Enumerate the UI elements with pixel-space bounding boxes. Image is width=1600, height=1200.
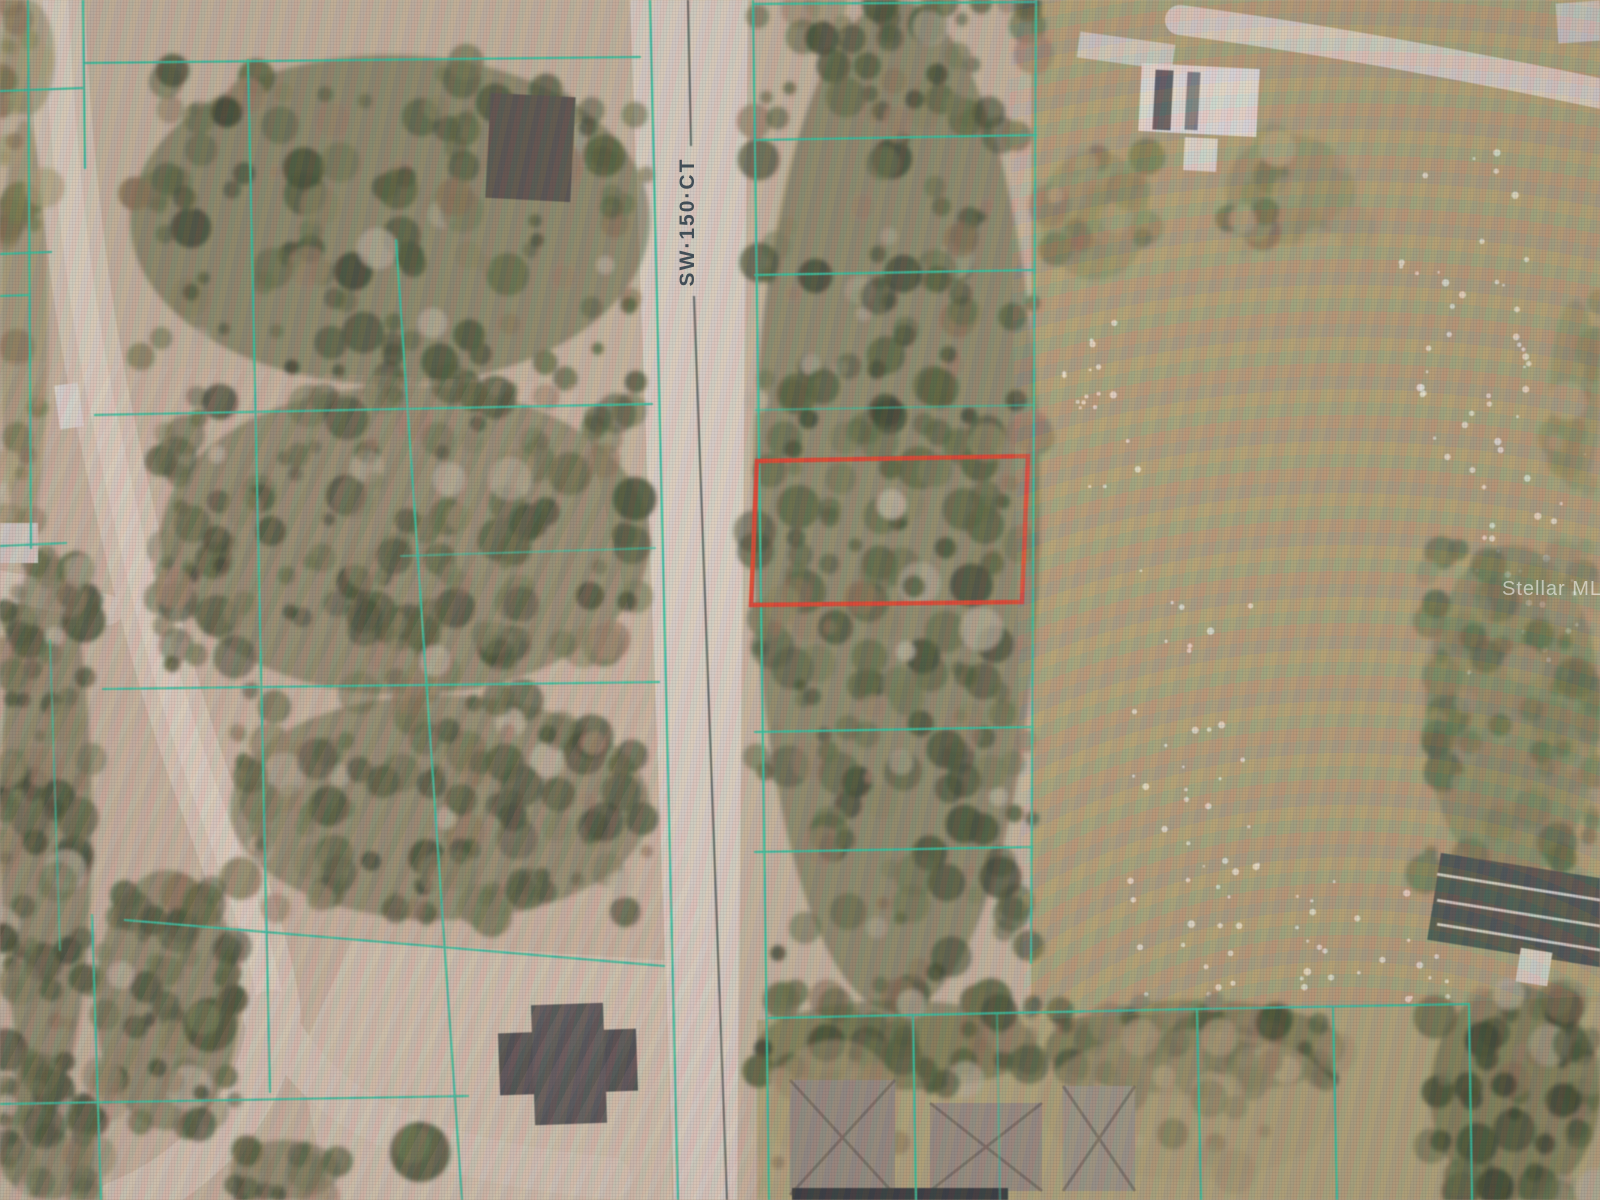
tree-canopy bbox=[819, 554, 840, 575]
tree-canopy bbox=[1508, 1106, 1522, 1120]
tree-canopy bbox=[541, 777, 575, 811]
tree-canopy bbox=[10, 584, 26, 600]
sand-speckle bbox=[1489, 523, 1495, 529]
sand-speckle bbox=[1132, 775, 1135, 778]
tree-canopy bbox=[1025, 295, 1041, 311]
sand-speckle bbox=[1422, 173, 1428, 179]
sand-speckle bbox=[1416, 962, 1423, 969]
tree-canopy bbox=[346, 757, 372, 783]
tree-canopy bbox=[23, 830, 48, 855]
tree-canopy bbox=[353, 443, 370, 460]
tree-canopy bbox=[757, 370, 775, 388]
tree-canopy bbox=[1258, 1049, 1283, 1074]
tree-canopy bbox=[1559, 668, 1572, 681]
tree-canopy bbox=[1272, 176, 1302, 206]
tree-canopy bbox=[825, 463, 856, 494]
tree-canopy bbox=[448, 44, 484, 80]
tree-canopy bbox=[93, 943, 111, 961]
tree-canopy bbox=[625, 371, 647, 393]
tree-canopy bbox=[1492, 1072, 1517, 1097]
sand-speckle bbox=[1437, 271, 1440, 274]
tree-canopy bbox=[171, 207, 212, 248]
sand-speckle bbox=[1482, 485, 1487, 490]
street-name-label: SW·150·CT bbox=[673, 132, 703, 312]
tree-canopy bbox=[342, 312, 384, 354]
tree-canopy bbox=[216, 929, 252, 965]
tree-canopy bbox=[864, 784, 900, 820]
tree-canopy bbox=[881, 666, 917, 702]
tree-canopy bbox=[597, 257, 613, 273]
tree-canopy bbox=[979, 199, 994, 214]
tree-canopy bbox=[1493, 978, 1524, 1009]
tree-canopy bbox=[242, 682, 259, 699]
tree-canopy bbox=[1579, 475, 1599, 495]
tree-canopy bbox=[579, 118, 598, 137]
sand-speckle bbox=[1469, 411, 1474, 416]
sand-speckle bbox=[1181, 943, 1185, 947]
tree-canopy bbox=[533, 350, 558, 375]
tree-canopy bbox=[277, 566, 295, 584]
sand-speckle bbox=[1296, 895, 1299, 898]
tree-canopy bbox=[1435, 649, 1449, 663]
tree-canopy bbox=[818, 741, 839, 762]
tree-canopy bbox=[867, 360, 886, 379]
tree-canopy bbox=[967, 813, 999, 845]
tree-canopy bbox=[850, 194, 876, 220]
tree-canopy bbox=[268, 166, 281, 179]
tree-canopy bbox=[1548, 382, 1587, 421]
tree-canopy bbox=[851, 639, 887, 675]
tree-canopy bbox=[419, 309, 447, 337]
tree-canopy bbox=[150, 327, 173, 350]
sand-speckle bbox=[1399, 265, 1403, 269]
tree-canopy bbox=[522, 624, 542, 644]
tree-canopy bbox=[785, 286, 800, 301]
sand-speckle bbox=[1462, 422, 1469, 429]
tree-canopy bbox=[5, 41, 19, 55]
tree-canopy bbox=[435, 178, 474, 217]
tree-canopy bbox=[35, 1123, 57, 1145]
tree-canopy bbox=[973, 495, 999, 521]
sand-speckle bbox=[1232, 868, 1239, 875]
sand-speckle bbox=[1076, 400, 1080, 404]
sand-speckle bbox=[1309, 909, 1316, 916]
sand-speckle bbox=[1203, 865, 1205, 867]
stellar-mls-watermark: Stellar MLS bbox=[1502, 578, 1600, 601]
tree-canopy bbox=[1086, 185, 1111, 210]
tree-canopy bbox=[583, 135, 625, 177]
tree-canopy bbox=[223, 181, 241, 199]
tree-canopy bbox=[866, 146, 900, 180]
single-tree-highlight bbox=[187, 1002, 219, 1034]
tree-canopy bbox=[460, 109, 476, 125]
tree-canopy bbox=[332, 364, 345, 377]
tree-canopy bbox=[621, 297, 638, 314]
tree-canopy bbox=[448, 150, 480, 182]
sand-speckle bbox=[1088, 485, 1091, 488]
tree-canopy bbox=[325, 396, 369, 440]
tree-canopy bbox=[261, 106, 299, 144]
tree-canopy bbox=[932, 197, 951, 216]
tree-canopy bbox=[283, 147, 325, 189]
tree-canopy bbox=[185, 643, 208, 666]
sand-speckle bbox=[1516, 415, 1519, 418]
tree-canopy bbox=[1512, 789, 1551, 828]
tree-canopy bbox=[1582, 806, 1600, 824]
sand-speckle bbox=[1442, 279, 1449, 286]
tree-canopy bbox=[961, 1021, 978, 1038]
tree-canopy bbox=[766, 107, 789, 130]
tree-canopy bbox=[75, 743, 107, 775]
tree-canopy bbox=[1545, 980, 1588, 1023]
tree-canopy bbox=[183, 101, 216, 134]
sand-speckle bbox=[1171, 601, 1174, 604]
tree-canopy bbox=[30, 1080, 46, 1096]
sand-speckle bbox=[1357, 971, 1361, 975]
tree-canopy bbox=[760, 91, 773, 104]
tree-canopy bbox=[519, 427, 548, 456]
sand-speckle bbox=[1186, 878, 1191, 883]
tree-canopy bbox=[110, 880, 140, 910]
tree-canopy bbox=[1534, 1133, 1555, 1154]
sand-speckle bbox=[1517, 343, 1521, 347]
tree-canopy bbox=[932, 1069, 961, 1098]
tree-canopy bbox=[849, 538, 863, 552]
tree-canopy bbox=[323, 513, 336, 526]
tree-canopy bbox=[492, 898, 511, 917]
sand-speckle bbox=[1126, 439, 1130, 443]
sand-speckle bbox=[1187, 643, 1192, 648]
sand-speckle bbox=[1522, 386, 1529, 393]
sand-speckle bbox=[1512, 192, 1519, 199]
tree-canopy bbox=[308, 440, 321, 453]
tree-canopy bbox=[1060, 1019, 1073, 1032]
sand-speckle bbox=[1081, 400, 1085, 404]
tree-canopy bbox=[361, 851, 381, 871]
tree-canopy bbox=[592, 559, 607, 574]
tree-canopy bbox=[277, 784, 304, 811]
tree-canopy bbox=[392, 677, 429, 714]
tree-canopy bbox=[47, 578, 87, 618]
tree-canopy bbox=[1229, 205, 1256, 232]
tree-canopy bbox=[182, 883, 226, 927]
tree-canopy bbox=[155, 437, 198, 480]
tree-canopy bbox=[423, 95, 449, 121]
tree-canopy bbox=[1545, 1083, 1580, 1118]
tree-canopy bbox=[1525, 1163, 1544, 1182]
sand-speckle bbox=[1328, 974, 1334, 980]
sand-speckle bbox=[1192, 727, 1199, 734]
sand-speckle bbox=[1142, 783, 1149, 790]
tree-canopy bbox=[1258, 1125, 1271, 1138]
tree-canopy bbox=[1437, 1069, 1453, 1085]
tree-canopy bbox=[202, 384, 238, 420]
sand-speckle bbox=[1399, 259, 1405, 265]
tree-canopy bbox=[1006, 390, 1027, 411]
tree-canopy bbox=[1002, 122, 1031, 151]
roof-section bbox=[1152, 70, 1173, 131]
sand-speckle bbox=[1236, 923, 1243, 930]
tree-canopy bbox=[453, 319, 485, 351]
sand-speckle bbox=[1218, 721, 1225, 728]
tree-canopy bbox=[314, 326, 348, 360]
tree-canopy bbox=[746, 5, 770, 29]
tree-canopy bbox=[128, 1109, 154, 1135]
aerial-parcel-map-photo: SW·150·CT Stellar MLS bbox=[0, 0, 1600, 1200]
tree-canopy bbox=[273, 82, 294, 103]
tree-canopy bbox=[292, 607, 312, 627]
tree-canopy bbox=[156, 54, 189, 87]
tree-canopy bbox=[1157, 1118, 1188, 1149]
aerial-imagery bbox=[0, 0, 1600, 1200]
tree-canopy bbox=[608, 753, 632, 777]
tree-canopy bbox=[877, 897, 890, 910]
tree-canopy bbox=[641, 845, 653, 857]
tree-canopy bbox=[826, 77, 866, 117]
sand-speckle bbox=[1062, 371, 1066, 375]
sand-speckle bbox=[1184, 797, 1189, 802]
tree-canopy bbox=[269, 324, 283, 338]
tree-canopy bbox=[1299, 227, 1333, 261]
tree-canopy bbox=[203, 526, 231, 554]
tree-canopy bbox=[778, 216, 798, 236]
tree-canopy bbox=[864, 771, 876, 783]
tree-canopy bbox=[960, 608, 1002, 650]
sand-speckle bbox=[1186, 841, 1190, 845]
tree-canopy bbox=[881, 228, 896, 243]
tree-canopy bbox=[880, 26, 897, 43]
tree-canopy bbox=[944, 42, 971, 69]
tree-canopy bbox=[944, 93, 967, 116]
tree-canopy bbox=[323, 591, 349, 617]
tree-canopy bbox=[1444, 1158, 1481, 1195]
tree-canopy bbox=[1520, 697, 1544, 721]
sand-speckle bbox=[1230, 981, 1235, 986]
tree-canopy bbox=[1153, 1065, 1175, 1087]
sand-speckle bbox=[1498, 447, 1504, 453]
tree-canopy bbox=[287, 384, 330, 427]
sand-speckle bbox=[1493, 149, 1500, 156]
tree-canopy bbox=[1581, 828, 1597, 844]
tree-canopy bbox=[56, 797, 99, 840]
tree-canopy bbox=[770, 723, 783, 736]
tree-canopy bbox=[1553, 1026, 1590, 1063]
tree-canopy bbox=[252, 271, 275, 294]
tree-canopy bbox=[1422, 590, 1451, 619]
vehicle bbox=[0, 523, 38, 563]
sand-speckle bbox=[1219, 777, 1222, 780]
tree-canopy bbox=[764, 983, 801, 1020]
tree-canopy bbox=[973, 96, 1006, 129]
tree-canopy bbox=[191, 328, 210, 347]
tree-canopy bbox=[434, 445, 449, 460]
sand-speckle bbox=[1469, 467, 1475, 473]
tree-canopy bbox=[1260, 131, 1296, 167]
tree-canopy bbox=[535, 880, 557, 902]
tree-canopy bbox=[844, 580, 877, 613]
sand-speckle bbox=[1403, 890, 1410, 897]
sand-speckle bbox=[1410, 996, 1413, 999]
tree-canopy bbox=[62, 1017, 75, 1030]
tree-canopy bbox=[991, 683, 1010, 702]
sand-speckle bbox=[1204, 964, 1209, 969]
tree-canopy bbox=[548, 452, 591, 495]
tree-canopy bbox=[500, 534, 532, 566]
tree-canopy bbox=[820, 507, 840, 527]
tree-canopy bbox=[22, 937, 39, 954]
tree-canopy bbox=[1454, 1072, 1483, 1101]
tree-canopy bbox=[212, 556, 229, 573]
tree-canopy bbox=[1013, 638, 1030, 655]
sand-speckle bbox=[1216, 885, 1220, 889]
tree-canopy bbox=[6, 621, 33, 648]
tree-canopy bbox=[213, 636, 256, 679]
tree-canopy bbox=[1109, 1025, 1122, 1038]
tree-canopy bbox=[70, 927, 93, 950]
sand-speckle bbox=[1447, 332, 1452, 337]
tree-canopy bbox=[400, 250, 427, 277]
tree-canopy bbox=[889, 751, 912, 774]
sand-speckle bbox=[1089, 341, 1095, 347]
tree-canopy bbox=[1009, 411, 1053, 455]
tree-canopy bbox=[1537, 760, 1555, 778]
tree-canopy bbox=[613, 477, 657, 521]
tree-canopy bbox=[366, 472, 384, 490]
sand-speckle bbox=[1534, 513, 1541, 520]
tree-canopy bbox=[908, 710, 934, 736]
tree-canopy bbox=[1012, 930, 1043, 961]
tree-canopy bbox=[295, 816, 316, 837]
sand-speckle bbox=[1502, 284, 1505, 287]
tree-canopy bbox=[15, 466, 29, 480]
tree-canopy bbox=[1422, 730, 1449, 757]
tree-canopy bbox=[17, 42, 55, 80]
tree-canopy bbox=[1240, 181, 1263, 204]
tree-canopy bbox=[993, 919, 1015, 941]
tree-canopy bbox=[380, 332, 403, 355]
tree-canopy bbox=[1478, 1017, 1510, 1049]
sand-speckle bbox=[1317, 945, 1322, 950]
tree-canopy bbox=[617, 591, 637, 611]
sand-speckle bbox=[1514, 307, 1520, 313]
tree-canopy bbox=[860, 422, 899, 461]
tree-canopy bbox=[481, 683, 515, 717]
tree-canopy bbox=[881, 859, 901, 879]
tree-canopy bbox=[48, 1013, 65, 1030]
sand-speckle bbox=[1521, 347, 1525, 351]
tree-canopy bbox=[1548, 434, 1564, 450]
tree-canopy bbox=[1122, 1019, 1159, 1056]
tree-canopy bbox=[439, 564, 462, 587]
tree-canopy bbox=[1415, 560, 1440, 585]
sand-speckle bbox=[1228, 950, 1234, 956]
tree-canopy bbox=[4, 1157, 17, 1170]
sand-speckle bbox=[1164, 640, 1167, 643]
sand-speckle bbox=[1097, 392, 1101, 396]
dark-roof-house bbox=[485, 93, 575, 202]
sand-speckle bbox=[1131, 897, 1137, 903]
tree-canopy bbox=[317, 87, 333, 103]
tree-canopy bbox=[185, 133, 218, 166]
tree-canopy bbox=[5, 1132, 19, 1146]
tree-canopy bbox=[746, 390, 767, 411]
tree-canopy bbox=[314, 102, 351, 139]
tree-canopy bbox=[998, 303, 1026, 331]
tree-canopy bbox=[181, 1107, 216, 1142]
tree-canopy bbox=[913, 366, 953, 406]
tree-canopy bbox=[4, 691, 20, 707]
tree-canopy bbox=[830, 893, 867, 930]
tree-canopy bbox=[794, 679, 806, 691]
tree-canopy bbox=[926, 963, 945, 982]
tree-canopy bbox=[1455, 691, 1477, 713]
tree-canopy bbox=[37, 944, 50, 957]
tree-canopy bbox=[147, 954, 166, 973]
sand-speckle bbox=[1560, 502, 1563, 505]
sand-speckle bbox=[1103, 485, 1107, 489]
tree-canopy bbox=[777, 485, 821, 529]
tree-canopy bbox=[925, 419, 952, 446]
tree-canopy bbox=[771, 1156, 784, 1169]
parcel-boundary-line bbox=[0, 295, 29, 296]
tree-canopy bbox=[197, 272, 210, 285]
tree-canopy bbox=[347, 612, 381, 646]
tree-canopy bbox=[584, 802, 624, 842]
tree-canopy bbox=[576, 582, 604, 610]
tree-canopy bbox=[789, 912, 821, 944]
tree-canopy bbox=[214, 1065, 238, 1089]
tree-canopy bbox=[770, 945, 786, 961]
tree-canopy bbox=[1087, 244, 1120, 277]
sand-speckle bbox=[1487, 401, 1492, 406]
sand-speckle bbox=[1459, 291, 1466, 298]
tree-canopy bbox=[1308, 1013, 1329, 1034]
tree-canopy bbox=[1523, 619, 1554, 650]
tree-canopy bbox=[1451, 773, 1471, 793]
tree-canopy bbox=[979, 856, 1021, 898]
tree-canopy bbox=[752, 641, 768, 657]
tree-canopy bbox=[586, 443, 621, 478]
tree-canopy bbox=[836, 353, 862, 379]
tree-canopy bbox=[989, 700, 1017, 728]
tree-canopy bbox=[377, 169, 418, 210]
tree-canopy bbox=[949, 282, 972, 305]
sand-speckle bbox=[1089, 369, 1092, 372]
sand-speckle bbox=[1495, 280, 1500, 285]
sand-speckle bbox=[1207, 727, 1212, 732]
vehicles bbox=[1556, 1, 1600, 44]
tree-canopy bbox=[75, 667, 96, 688]
tree-canopy bbox=[1475, 1047, 1498, 1070]
sand-speckle bbox=[1421, 390, 1427, 396]
shed bbox=[1516, 948, 1553, 987]
tree-canopy bbox=[549, 630, 576, 657]
tree-canopy bbox=[146, 530, 182, 566]
tree-canopy bbox=[382, 753, 421, 792]
tree-canopy bbox=[591, 342, 603, 354]
tree-canopy bbox=[823, 620, 837, 634]
sand-speckle bbox=[1522, 353, 1529, 360]
tree-canopy bbox=[307, 543, 336, 572]
tree-canopy bbox=[990, 788, 1007, 805]
tree-canopy bbox=[127, 343, 155, 371]
tree-canopy bbox=[1505, 645, 1543, 683]
sand-speckle bbox=[1187, 648, 1192, 653]
tree-canopy bbox=[1488, 714, 1511, 737]
tree-canopy bbox=[174, 500, 189, 515]
tree-canopy bbox=[286, 443, 311, 468]
sand-speckle bbox=[1132, 709, 1137, 714]
